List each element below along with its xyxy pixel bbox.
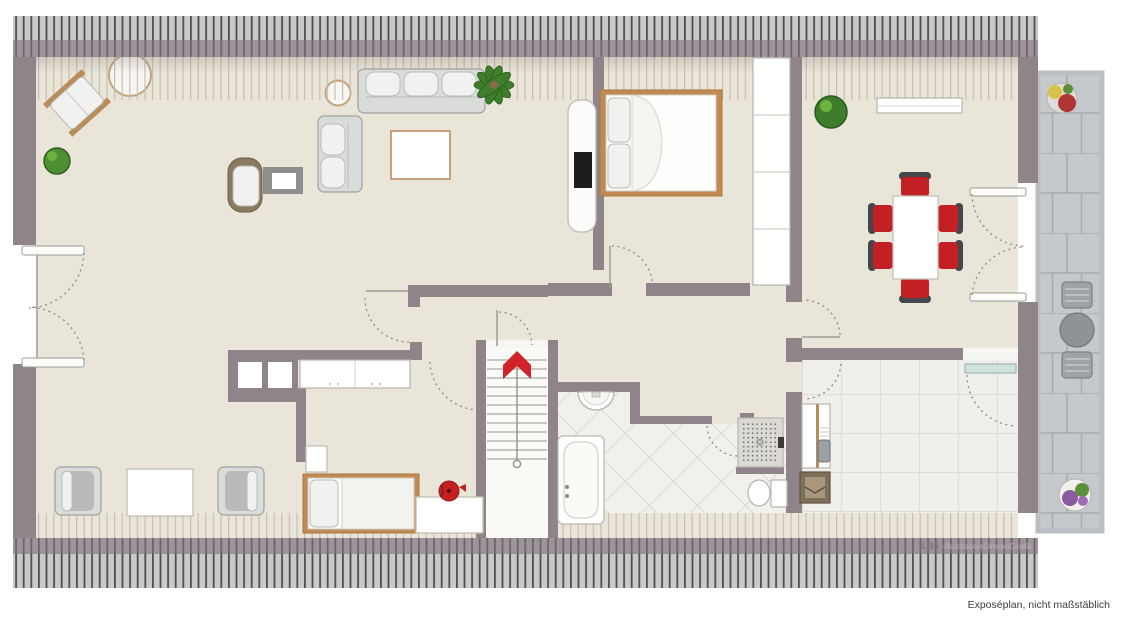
wall-left-lower <box>13 364 36 538</box>
built-in-wardrobe <box>753 58 790 285</box>
wall-east-lower <box>1018 348 1038 513</box>
dining-plant <box>815 96 847 128</box>
disclaimer-text: Exposéplan, nicht maßstäblich <box>968 599 1111 611</box>
wall-shadow-top <box>36 57 1018 73</box>
wicker-armchair <box>228 158 262 212</box>
wall-bedroom-south-right <box>646 283 750 296</box>
kitchen-floor <box>802 355 1018 513</box>
wall-left-upper <box>13 40 36 245</box>
sitting-corner <box>55 467 264 516</box>
wall-cap-divider <box>410 342 422 360</box>
coffee-table <box>391 131 450 179</box>
kitchen-stove <box>800 472 830 503</box>
staircase <box>486 310 548 538</box>
roof-wall-band-bottom <box>13 538 1038 554</box>
kitchen-counter <box>802 404 830 468</box>
pillow <box>310 480 338 527</box>
roof-wall-band-top <box>13 40 1038 57</box>
basin-tap <box>592 392 600 397</box>
flower-pot-south <box>1059 479 1091 511</box>
wall-partial-vertical <box>296 388 306 462</box>
door-opening <box>963 348 1018 360</box>
dining-sideboard <box>877 98 962 113</box>
sideboard-living <box>300 360 410 388</box>
nightstand <box>306 446 327 472</box>
stair-door-opening <box>486 340 548 348</box>
floorplan-page: LBS -Illustration©immoGrafik Exposéplan,… <box>0 0 1123 625</box>
stair-newel <box>513 460 520 467</box>
square-side-table <box>263 167 303 194</box>
kitchen-sink <box>818 440 830 462</box>
desk <box>416 497 483 533</box>
plant-highlight <box>47 151 57 161</box>
flower-pot-north <box>1047 83 1077 113</box>
corner-table <box>127 469 193 516</box>
roof-hatch-top-outer <box>13 16 1038 40</box>
roof-hatch-bottom-outer <box>13 554 1038 588</box>
bathtub <box>558 436 604 524</box>
wall-hallway-north <box>420 285 548 297</box>
wall-bath-step <box>630 392 640 424</box>
wall-kitchen-north <box>786 348 963 360</box>
glass-door-leaf <box>965 364 1016 373</box>
toilet-bowl <box>748 480 770 506</box>
blanket <box>342 478 414 529</box>
shower <box>738 418 784 467</box>
potted-plant-living <box>44 148 70 174</box>
wall-bath-north-left <box>548 382 640 392</box>
wall-shower-stub <box>736 467 784 474</box>
garden-table <box>1060 313 1094 347</box>
wall-bedroom-south-left <box>548 283 612 296</box>
floorplan-drawing: LBS -Illustration©immoGrafik Exposéplan,… <box>0 0 1123 625</box>
tv-board <box>568 100 596 232</box>
wall-bath-north-right <box>640 416 712 424</box>
watermark-suffix: -Illustration©immoGrafik <box>941 541 1033 551</box>
pillow-bottom <box>608 144 630 188</box>
chimney-flue-right <box>268 362 292 388</box>
wall-east-middle <box>1018 302 1038 348</box>
wall-stair-right <box>548 340 558 538</box>
chimney-flue-left <box>238 362 262 388</box>
tub-tap <box>565 485 569 489</box>
wall-cap-hallway <box>408 285 420 307</box>
dining-table <box>893 196 938 279</box>
watermark-brand: LBS <box>922 541 939 551</box>
double-bed <box>600 90 722 196</box>
tv <box>574 152 592 188</box>
three-seat-sofa <box>358 69 485 113</box>
two-seat-sofa <box>318 116 362 192</box>
shower-fixture <box>778 437 784 448</box>
pillow-top <box>608 98 630 142</box>
shower-drain <box>757 439 763 445</box>
toilet-tank <box>771 480 787 507</box>
wall-east-upper <box>1018 57 1038 183</box>
single-bed <box>303 474 419 533</box>
